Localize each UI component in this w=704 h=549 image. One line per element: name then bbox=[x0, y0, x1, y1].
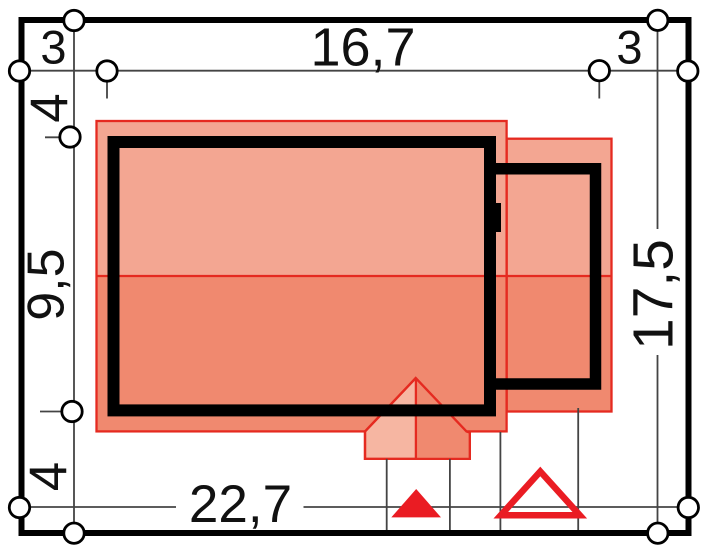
svg-text:3: 3 bbox=[616, 20, 642, 73]
svg-text:4: 4 bbox=[20, 93, 79, 122]
svg-text:3: 3 bbox=[40, 20, 66, 73]
svg-text:22,7: 22,7 bbox=[189, 475, 292, 534]
svg-text:16,7: 16,7 bbox=[310, 18, 415, 78]
svg-text:4: 4 bbox=[19, 462, 78, 491]
svg-text:17,5: 17,5 bbox=[621, 239, 685, 350]
svg-text:9,5: 9,5 bbox=[18, 248, 76, 320]
